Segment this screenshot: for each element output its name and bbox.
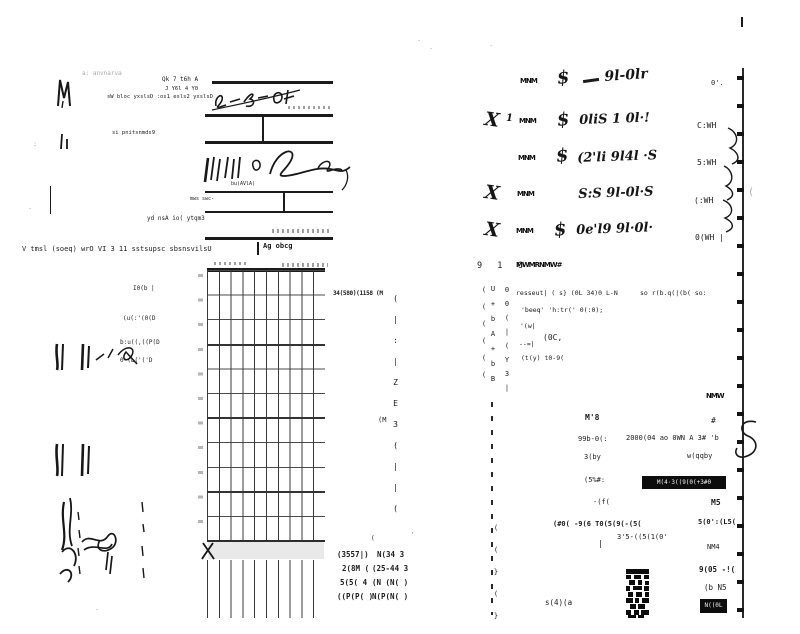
code-tick: ( bbox=[371, 536, 375, 542]
handwritten-x-check: X bbox=[483, 220, 500, 241]
field-value: (#0( -9(6 T0(5(9(-(5( bbox=[553, 521, 642, 528]
block-row: '(w| bbox=[520, 323, 536, 330]
field-value: w(qqby bbox=[687, 453, 712, 460]
inverse-banner: M(4·3((9(0(+3#0 bbox=[642, 476, 726, 489]
edge-label: 0'. bbox=[711, 80, 724, 87]
code-cell: (N (N( ) bbox=[372, 579, 408, 587]
handwritten-amount: 9l-0lr bbox=[604, 67, 648, 84]
code-cell: 5(5( 4 bbox=[340, 579, 367, 587]
char-column: 00(|(Y3| bbox=[503, 286, 510, 398]
grid-smudge bbox=[282, 263, 328, 267]
grid-table-lower bbox=[207, 560, 325, 618]
code-cell: ((P(P( ) bbox=[337, 593, 373, 601]
field-tag-blob: MNM bbox=[517, 191, 534, 198]
field-tag-blob: MNM bbox=[520, 78, 537, 85]
handwritten-x-mark bbox=[200, 541, 217, 561]
corner-tick-mark bbox=[741, 17, 743, 27]
tally-strokes bbox=[78, 440, 94, 480]
margin-scribble bbox=[53, 74, 75, 112]
field-value: 3'5-((5(1(0' bbox=[617, 534, 668, 541]
grid-side-m: (M bbox=[378, 417, 386, 424]
grid-thick-rule bbox=[207, 491, 325, 493]
field-mark: | bbox=[598, 540, 603, 548]
handwritten-amount: (2'li 9l4l ·S bbox=[577, 149, 657, 165]
grid-thick-rule bbox=[207, 344, 325, 346]
signature bbox=[198, 142, 352, 198]
edge-label: (:WH bbox=[694, 197, 713, 205]
grid-side-header: 34(580)(1158 (M bbox=[333, 291, 383, 297]
field-value: 9(05 -!( bbox=[699, 566, 735, 574]
field-tag-blob: MNM bbox=[519, 118, 536, 125]
stub-faint-note: a: anvnarva bbox=[82, 71, 122, 77]
stub-rule bbox=[205, 237, 333, 240]
block-row: resseut| ( s} (0L 34)0 L-N bbox=[516, 290, 618, 297]
field-tag-blob: MNM bbox=[518, 155, 535, 162]
margin-scrawl bbox=[92, 340, 142, 368]
field-value: (b N5 bbox=[704, 584, 727, 592]
grid-smudge bbox=[214, 262, 248, 265]
field-value: 99b-0(: bbox=[578, 436, 608, 443]
margin-label: I0(b | bbox=[133, 286, 155, 292]
field-value: M'8 bbox=[585, 414, 599, 422]
stub-preliminary-label: si pnitsnmds9 bbox=[112, 131, 155, 137]
tally-strokes bbox=[52, 440, 68, 480]
tally-strokes bbox=[52, 340, 68, 374]
dollar-sign: $ bbox=[556, 111, 570, 130]
field-tag-blob: MNM bbox=[516, 228, 533, 235]
char-column: U+bA+bB bbox=[489, 285, 496, 390]
stub-empty-label: yd nsA io( ytqm3 bbox=[147, 216, 205, 222]
scan-speck: · bbox=[489, 43, 493, 50]
black-blob-value: N((0L bbox=[700, 599, 727, 613]
stub-line1: Qk 7 t6h A bbox=[162, 77, 198, 83]
handwritten-dash bbox=[583, 78, 599, 83]
stub-by-date-label: Ag obcg bbox=[263, 243, 293, 250]
stub-divider bbox=[257, 242, 259, 255]
handwritten-x-check: X bbox=[483, 110, 500, 131]
field-mark: # bbox=[711, 417, 716, 425]
handwritten-one: 1 bbox=[506, 114, 513, 124]
code-cell: N(34 3 bbox=[377, 551, 404, 559]
handwritten-amount: 0e'l9 9l·0l· bbox=[576, 221, 653, 237]
footer-tag-blob: MWMRNMW# bbox=[516, 262, 561, 269]
stub-line2: J Y6l 4 Y0 bbox=[165, 87, 198, 93]
handwriting-cluster bbox=[50, 490, 152, 594]
field-value: (5%#: bbox=[584, 477, 605, 484]
field-value: 3(by bbox=[584, 454, 601, 461]
scan-speck: · bbox=[429, 46, 433, 53]
handwritten-amount: 0liS 1 0l·! bbox=[579, 112, 650, 127]
field-tag-blob: NMW bbox=[706, 393, 724, 400]
tally-strokes bbox=[78, 340, 94, 374]
edge-label: C:WH bbox=[697, 122, 716, 130]
field-value: s(4)(a bbox=[545, 599, 572, 607]
field-value: -(f( bbox=[593, 499, 610, 506]
grid-side-column-chars: (|:|ZE3(||( bbox=[391, 294, 399, 525]
block-row: (t(y) t0-9( bbox=[521, 355, 564, 362]
code-cell: N(P(N( ) bbox=[372, 593, 408, 601]
grid-row-label-smudges bbox=[198, 274, 203, 540]
margin-line bbox=[50, 186, 51, 214]
stub-rule bbox=[205, 211, 333, 213]
field-value: M5 bbox=[711, 499, 721, 507]
code-cell: (3557|) bbox=[337, 551, 369, 559]
margin-stroke bbox=[58, 132, 70, 152]
stub-faint-dotted bbox=[272, 229, 330, 233]
margin-speck: · bbox=[28, 206, 32, 213]
grid-shaded-row bbox=[208, 542, 324, 559]
dollar-sign: $ bbox=[553, 221, 567, 240]
scan-speck: · bbox=[417, 38, 421, 45]
stub-divider bbox=[262, 116, 264, 143]
margin-label: (u(:'(0(D bbox=[123, 316, 156, 322]
dollar-sign: $ bbox=[555, 147, 569, 166]
grid-thick-rule bbox=[207, 417, 325, 419]
field-value: 2000(04 ao 0WN A 3# 'b bbox=[626, 435, 719, 442]
field-value: 5(0':(L5( bbox=[698, 519, 736, 526]
code-cell: 2(8M ( bbox=[342, 565, 369, 573]
stub-bottom-line: V tmsl (soeq) wrO VI 3 11 sstsupsc sbsns… bbox=[22, 246, 212, 253]
dollar-sign: $ bbox=[556, 69, 570, 88]
block-row-right: so r(b.q(|(b( so: bbox=[640, 290, 707, 297]
stub-dealer-line: sW bloc yxslsD :os1 esls2 yxslsD bbox=[107, 95, 213, 101]
handwritten-s bbox=[732, 416, 768, 464]
block-row: (0C, bbox=[543, 334, 562, 342]
handwritten-amount: S:S 9l-0l·S bbox=[578, 185, 654, 201]
handwritten-date bbox=[210, 80, 302, 116]
edge-curl-faint: ( bbox=[748, 188, 754, 198]
margin-speck: : bbox=[33, 141, 37, 148]
edge-label: 5:WH bbox=[697, 159, 716, 167]
scanned-document-page: { "doc": {"bg": "#ffffff", "ink": "#1b1b… bbox=[0, 0, 800, 618]
block-row: --=| bbox=[519, 341, 535, 348]
handwritten-x-check: X bbox=[483, 183, 500, 204]
grid-table bbox=[207, 270, 325, 542]
block-row: 'beeq' 'h:tr(' 0(:0); bbox=[521, 307, 603, 314]
field-value: NM4 bbox=[707, 544, 720, 551]
code-tick: ' bbox=[411, 533, 414, 538]
barcode-2d bbox=[626, 569, 649, 618]
bracket-column: (((((( bbox=[480, 286, 487, 388]
code-cell: (25-44 3 bbox=[372, 565, 408, 573]
margin-speck: · bbox=[95, 607, 99, 614]
edge-tick-marks bbox=[737, 76, 744, 616]
